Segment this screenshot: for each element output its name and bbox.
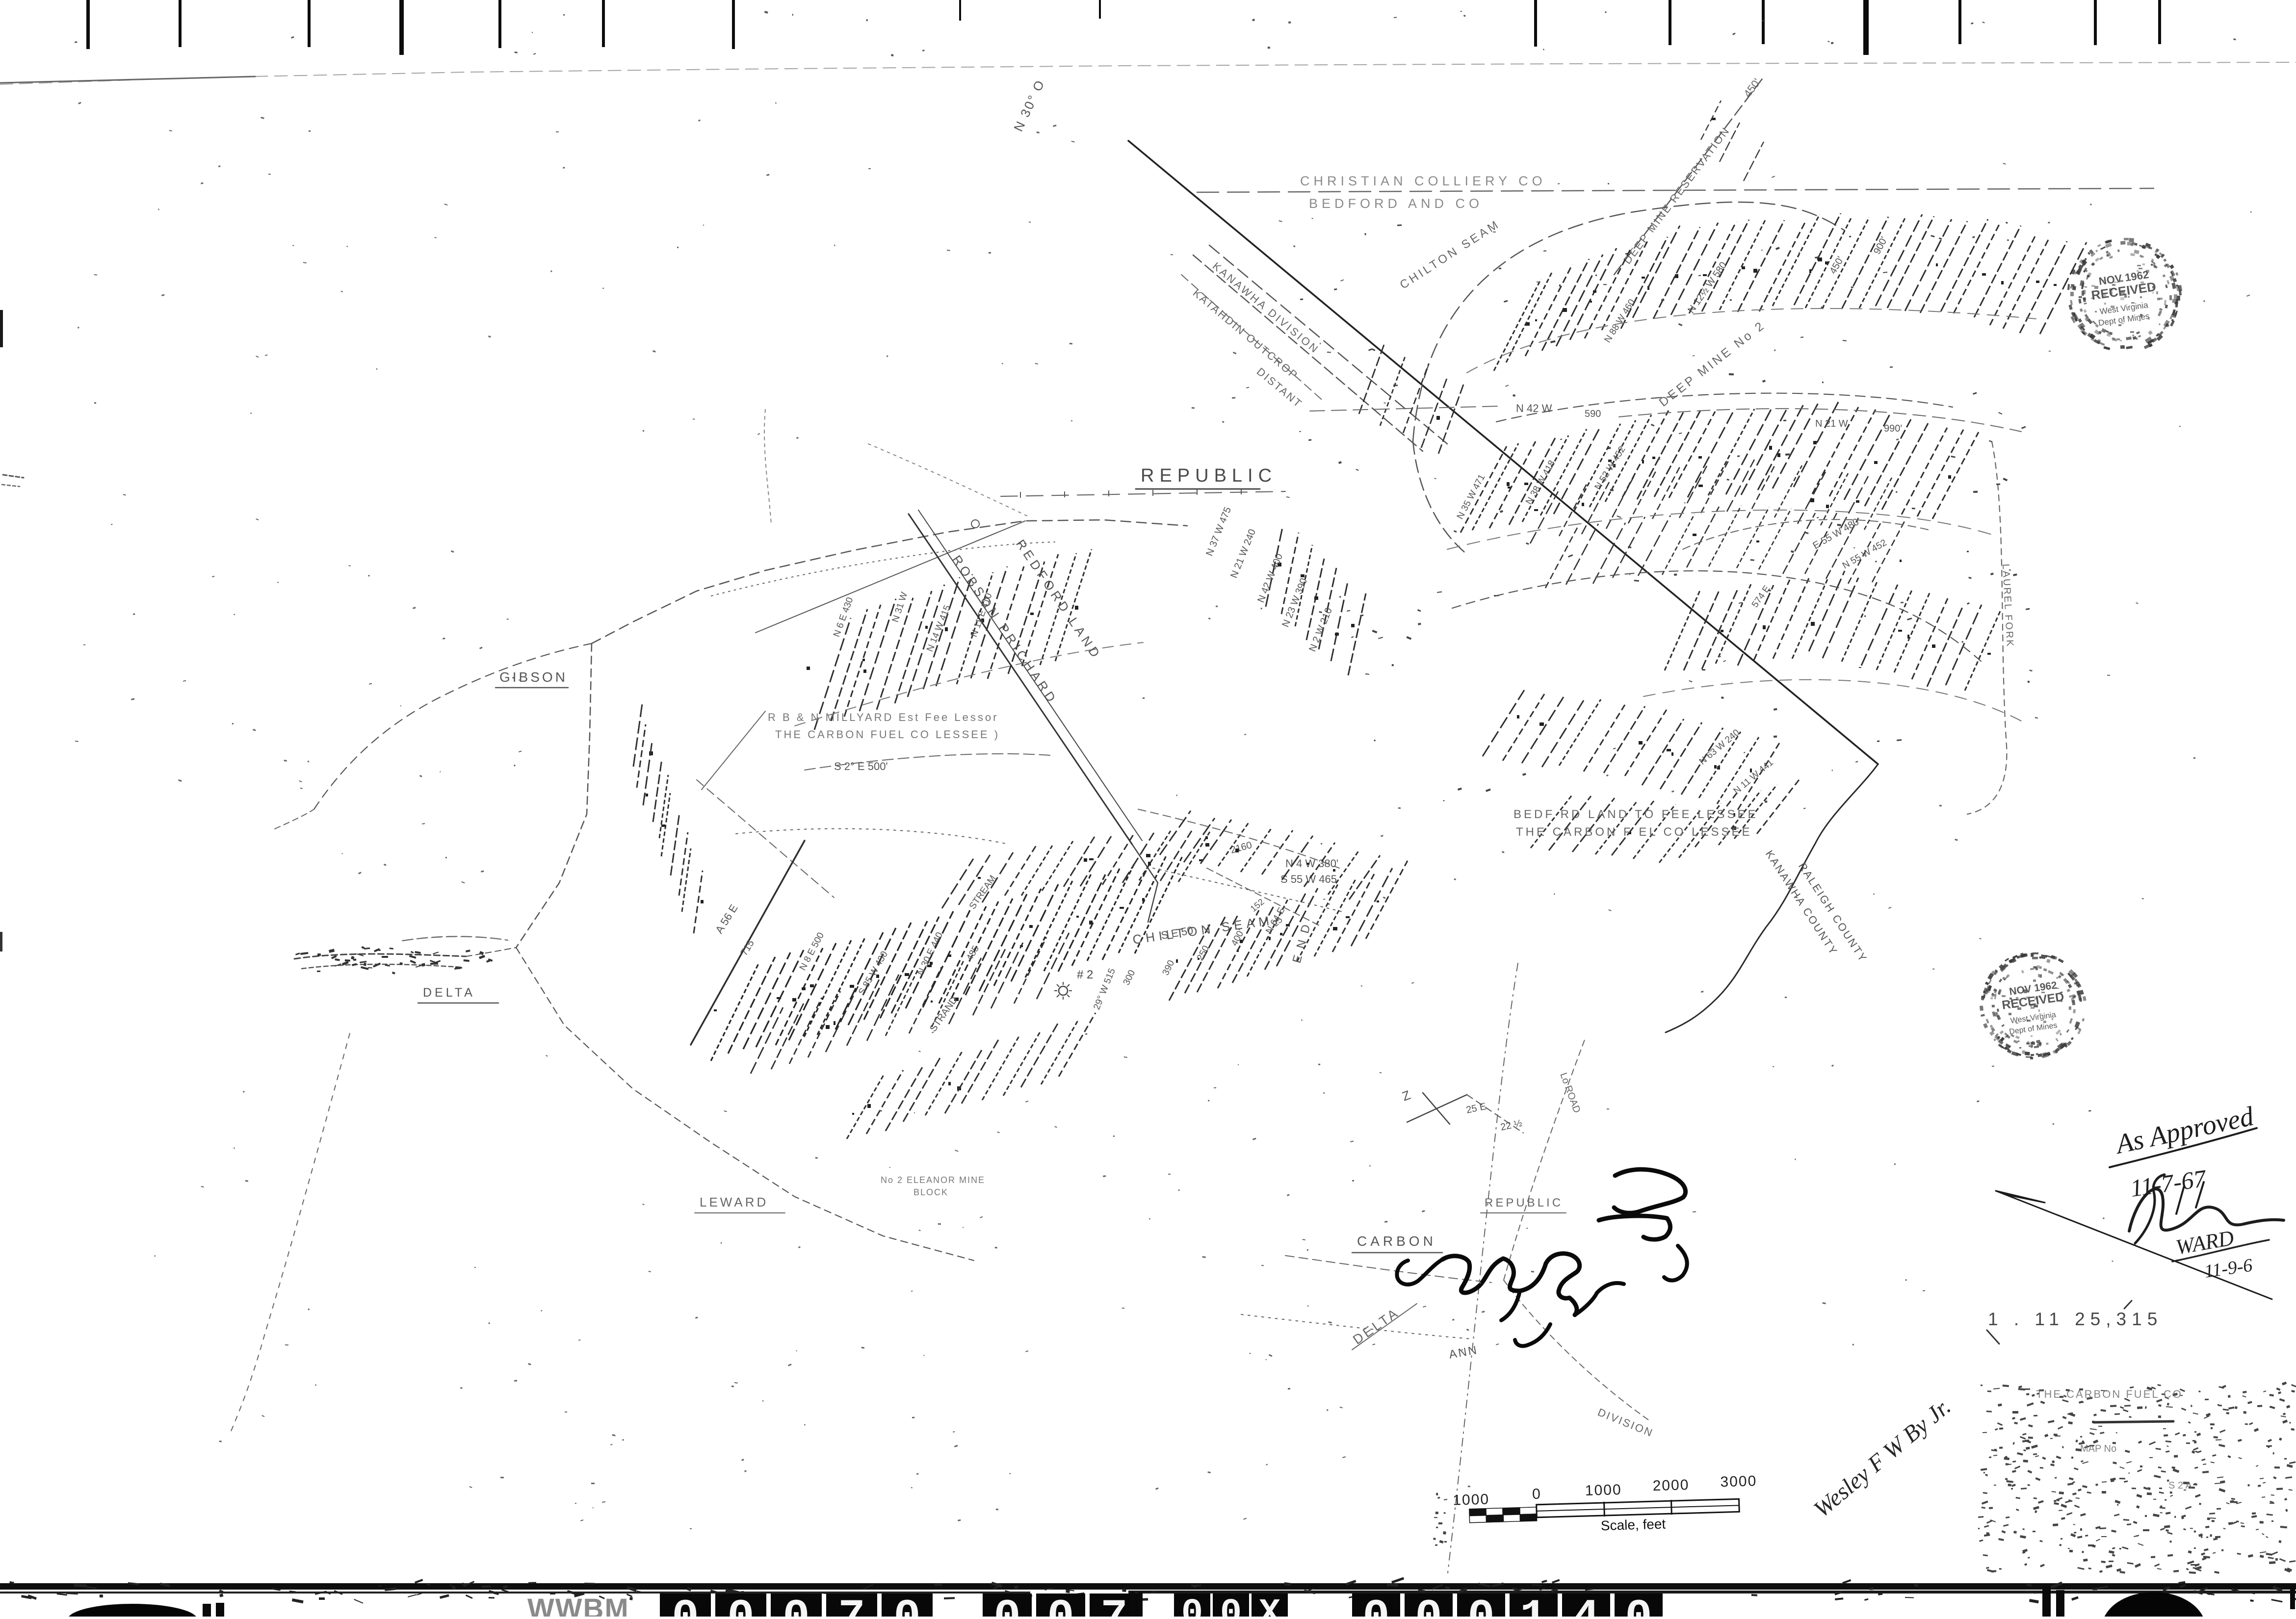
svg-text:1000: 1000 bbox=[1585, 1482, 1622, 1499]
svg-text:BEDFORD AND CO: BEDFORD AND CO bbox=[1309, 196, 1483, 211]
svg-text:THE CARBON FUEL CO: THE CARBON FUEL CO bbox=[2036, 1388, 2183, 1400]
svg-text:LEWARD: LEWARD bbox=[700, 1195, 768, 1209]
svg-text:590: 590 bbox=[1585, 409, 1601, 419]
svg-text:MAP No: MAP No bbox=[2080, 1443, 2116, 1454]
svg-text:3000: 3000 bbox=[1720, 1473, 1757, 1490]
svg-text:Scale, feet: Scale, feet bbox=[1600, 1516, 1666, 1534]
svg-text:BEDF RD LAND TO FEE LESSEE: BEDF RD LAND TO FEE LESSEE bbox=[1513, 808, 1758, 821]
svg-text:0: 0 bbox=[1625, 1592, 1652, 1617]
svg-text:X: X bbox=[1259, 1593, 1281, 1617]
svg-text:0: 0 bbox=[1362, 1592, 1389, 1617]
svg-text:0: 0 bbox=[672, 1592, 699, 1617]
svg-text:REPUBLIC: REPUBLIC bbox=[1485, 1196, 1563, 1209]
svg-text:CHRISTIAN COLLIERY CO: CHRISTIAN COLLIERY CO bbox=[1300, 174, 1546, 188]
svg-text:0: 0 bbox=[727, 1592, 754, 1617]
svg-text:1000: 1000 bbox=[1453, 1491, 1490, 1509]
svg-text:990': 990' bbox=[1884, 423, 1902, 434]
svg-text:No 2 ELEANOR MINE: No 2 ELEANOR MINE bbox=[881, 1175, 985, 1185]
svg-text:0: 0 bbox=[783, 1592, 809, 1617]
svg-text:DELTA: DELTA bbox=[423, 986, 475, 1000]
svg-text:THE CARBON F EL CO LESSEE: THE CARBON F EL CO LESSEE bbox=[1516, 825, 1752, 839]
svg-text:7: 7 bbox=[1100, 1592, 1127, 1617]
svg-text:0: 0 bbox=[993, 1592, 1020, 1617]
svg-text:BLOCK: BLOCK bbox=[913, 1187, 948, 1197]
svg-text:0: 0 bbox=[1467, 1592, 1494, 1617]
svg-text:GIBSON: GIBSON bbox=[499, 669, 568, 685]
svg-text:# 2: # 2 bbox=[1077, 968, 1093, 981]
svg-text:4: 4 bbox=[1572, 1592, 1599, 1617]
svg-text:REPUBLIC: REPUBLIC bbox=[1141, 465, 1277, 486]
svg-text:CARBON: CARBON bbox=[1357, 1234, 1436, 1249]
svg-text:S 2° E 500': S 2° E 500' bbox=[834, 760, 888, 772]
svg-text:0: 0 bbox=[1181, 1593, 1203, 1617]
svg-text:S 55 W 465: S 55 W 465 bbox=[1280, 873, 1337, 885]
svg-text:2000: 2000 bbox=[1652, 1477, 1690, 1494]
svg-text:1 . 11 25,315: 1 . 11 25,315 bbox=[1988, 1309, 2163, 1329]
svg-text:THE CARBON FUEL CO LESSEE: THE CARBON FUEL CO LESSEE ) bbox=[775, 728, 1000, 741]
svg-text:1: 1 bbox=[1520, 1592, 1547, 1617]
svg-text:N 42 W: N 42 W bbox=[1516, 402, 1552, 414]
svg-text:WWBM: WWBM bbox=[527, 1593, 629, 1617]
svg-text:0: 0 bbox=[1532, 1486, 1541, 1502]
svg-text:0: 0 bbox=[1415, 1592, 1442, 1617]
svg-text:R B & N MILLYARD Est Fe: R B & N MILLYARD Est Fee Lessor bbox=[768, 711, 998, 723]
svg-text:N 21 W: N 21 W bbox=[1815, 418, 1848, 429]
svg-text:S 2 A: S 2 A bbox=[2168, 1480, 2192, 1491]
svg-text:0: 0 bbox=[893, 1592, 920, 1617]
svg-text:7: 7 bbox=[838, 1592, 865, 1617]
svg-text:0: 0 bbox=[1047, 1592, 1074, 1617]
svg-text:0: 0 bbox=[1220, 1593, 1242, 1617]
